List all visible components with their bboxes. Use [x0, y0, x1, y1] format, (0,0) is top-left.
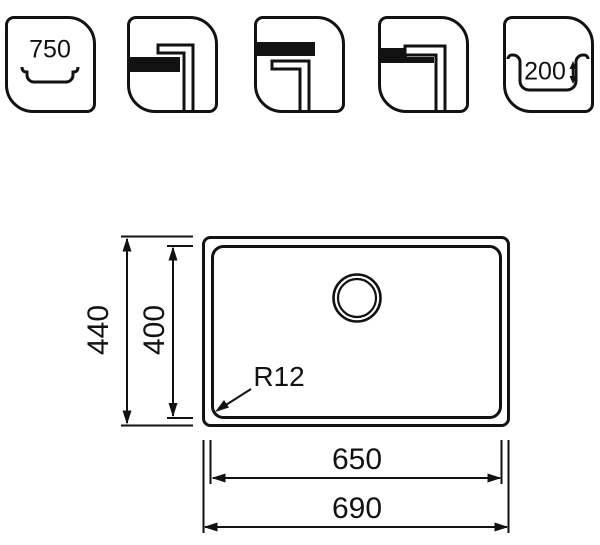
dim-440-arrow-up: [123, 238, 132, 252]
dim-690-arrow-left: [204, 523, 218, 532]
sink-outer-outline: [204, 238, 509, 426]
r12-leader-arrow: [215, 400, 229, 412]
dim-440-arrow-down: [123, 411, 132, 425]
dim-650-arrow-left: [212, 474, 226, 483]
drain-inner-circle: [338, 279, 376, 317]
sink-top-view-drawing: [0, 0, 600, 545]
dim-400-arrow-up: [169, 247, 178, 261]
dim-400-arrow-down: [169, 403, 178, 417]
corner-radius-label: R12: [253, 363, 304, 391]
drain-outer-circle: [334, 275, 381, 322]
outer-height-label: 440: [84, 305, 114, 355]
extension-lines: [121, 237, 509, 534]
outer-width-label: 690: [332, 494, 382, 524]
dim-650-arrow-right: [488, 474, 502, 483]
inner-width-label: 650: [332, 445, 382, 475]
dimension-arrowheads: [123, 238, 509, 532]
dimension-lines: [127, 239, 507, 527]
dim-690-arrow-right: [495, 523, 509, 532]
sink-technical-drawing-page: 750 200: [0, 0, 600, 545]
inner-height-label: 400: [140, 305, 170, 355]
